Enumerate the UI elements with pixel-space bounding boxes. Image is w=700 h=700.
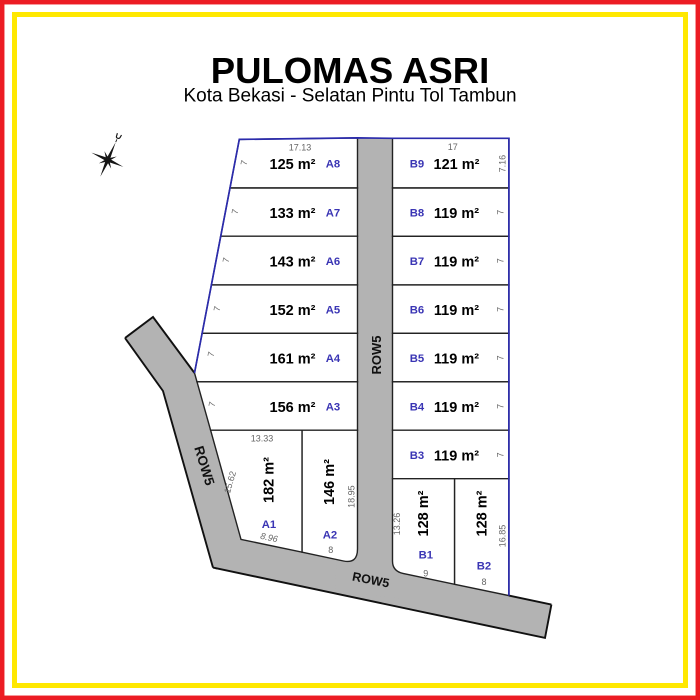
svg-text:13.33: 13.33 bbox=[251, 434, 274, 444]
svg-text:8: 8 bbox=[328, 545, 333, 555]
svg-text:17: 17 bbox=[448, 142, 458, 152]
svg-text:B9: B9 bbox=[410, 159, 424, 171]
svg-text:119 m²: 119 m² bbox=[434, 206, 479, 222]
svg-text:16.85: 16.85 bbox=[498, 525, 508, 548]
svg-text:B1: B1 bbox=[419, 550, 433, 562]
svg-text:9: 9 bbox=[423, 569, 428, 579]
svg-text:119 m²: 119 m² bbox=[434, 448, 479, 464]
svg-text:A7: A7 bbox=[326, 207, 340, 219]
svg-text:128 m²: 128 m² bbox=[475, 490, 491, 536]
svg-text:17.13: 17.13 bbox=[289, 143, 312, 153]
svg-text:119 m²: 119 m² bbox=[434, 351, 479, 367]
svg-text:7: 7 bbox=[496, 355, 506, 360]
svg-text:7: 7 bbox=[496, 404, 506, 409]
svg-text:119 m²: 119 m² bbox=[434, 303, 479, 319]
svg-text:7: 7 bbox=[496, 258, 506, 263]
svg-text:8: 8 bbox=[481, 577, 486, 587]
svg-text:Kota Bekasi - Selatan Pintu To: Kota Bekasi - Selatan Pintu Tol Tambun bbox=[183, 86, 516, 107]
svg-text:125 m²: 125 m² bbox=[270, 157, 316, 173]
svg-text:146 m²: 146 m² bbox=[322, 459, 338, 505]
svg-text:A4: A4 bbox=[326, 353, 341, 365]
svg-text:A5: A5 bbox=[326, 304, 340, 316]
svg-text:182 m²: 182 m² bbox=[262, 457, 278, 503]
svg-text:119 m²: 119 m² bbox=[434, 254, 479, 270]
svg-text:A6: A6 bbox=[326, 256, 340, 268]
svg-text:7: 7 bbox=[496, 210, 506, 215]
svg-text:B4: B4 bbox=[410, 401, 425, 413]
svg-text:128 m²: 128 m² bbox=[416, 490, 432, 536]
svg-text:7.16: 7.16 bbox=[498, 155, 508, 173]
svg-text:A2: A2 bbox=[323, 530, 337, 542]
svg-text:B8: B8 bbox=[410, 207, 424, 219]
svg-text:7: 7 bbox=[496, 307, 506, 312]
svg-text:121 m²: 121 m² bbox=[434, 157, 480, 173]
svg-text:18.95: 18.95 bbox=[347, 485, 357, 508]
svg-text:156 m²: 156 m² bbox=[270, 400, 316, 416]
svg-text:13.26: 13.26 bbox=[392, 513, 402, 536]
svg-text:B3: B3 bbox=[410, 450, 424, 462]
svg-text:A8: A8 bbox=[326, 159, 340, 171]
svg-text:B2: B2 bbox=[477, 561, 491, 573]
svg-text:133 m²: 133 m² bbox=[270, 206, 316, 222]
svg-text:152 m²: 152 m² bbox=[270, 303, 316, 319]
svg-text:B7: B7 bbox=[410, 256, 424, 268]
svg-text:A1: A1 bbox=[262, 519, 276, 531]
svg-text:B5: B5 bbox=[410, 353, 424, 365]
svg-text:7: 7 bbox=[496, 452, 506, 457]
svg-text:B6: B6 bbox=[410, 304, 424, 316]
svg-text:161 m²: 161 m² bbox=[270, 351, 316, 367]
svg-text:119 m²: 119 m² bbox=[434, 400, 479, 416]
svg-text:143 m²: 143 m² bbox=[270, 254, 316, 270]
svg-text:A3: A3 bbox=[326, 401, 340, 413]
svg-text:ROW5: ROW5 bbox=[369, 336, 384, 375]
